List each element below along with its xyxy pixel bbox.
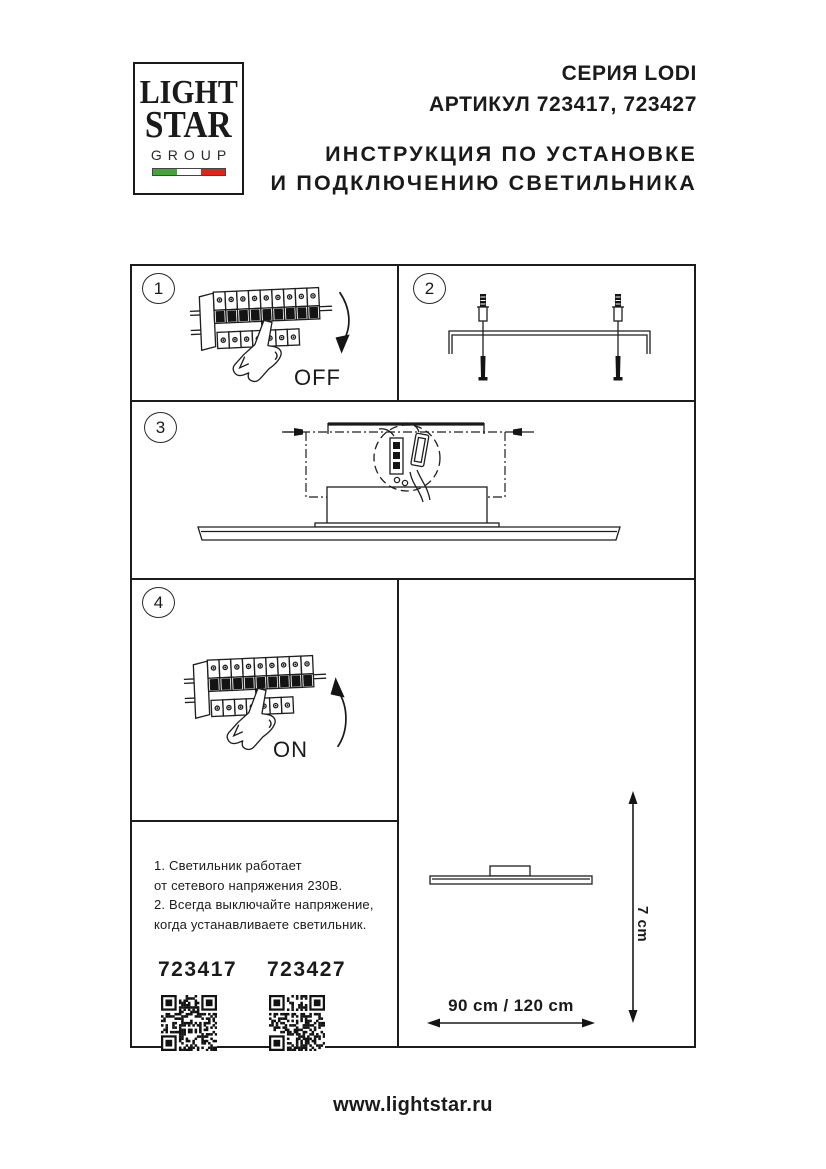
flag-white-segment — [177, 169, 201, 175]
step-number-badge: 1 — [142, 273, 175, 304]
mounting-bracket-diagram — [399, 266, 694, 400]
logo-word-group: GROUP — [151, 147, 232, 163]
flag-red-segment — [201, 169, 225, 175]
qr-code-723417 — [161, 995, 217, 1051]
article-numbers: АРТИКУЛ 723417, 723427 — [271, 93, 697, 117]
article-code-723427: 723427 — [267, 958, 329, 982]
note-line: когда устанавливаете светильник. — [154, 915, 387, 935]
dimensions-panel: 90 cm / 120 cm 7 cm — [399, 580, 694, 1046]
header: СЕРИЯ LODI АРТИКУЛ 723417, 723427 ИНСТРУ… — [271, 62, 697, 198]
logo-word-star: STAR — [145, 108, 232, 143]
step-panel-1: 1 OFF — [132, 266, 397, 400]
instruction-title-line2: И ПОДКЛЮЧЕНИЮ СВЕТИЛЬНИКА — [271, 169, 697, 198]
step-panel-2: 2 — [399, 266, 694, 400]
article-code-723417: 723417 — [158, 958, 220, 982]
notes-panel: 1. Светильник работает от сетевого напря… — [132, 822, 397, 1046]
qr-code-723427 — [269, 995, 325, 1051]
on-label: ON — [273, 737, 308, 763]
step-panel-4: 4 ON — [132, 580, 397, 820]
off-label: OFF — [294, 365, 341, 391]
website-url: www.lightstar.ru — [0, 1094, 826, 1117]
step-panel-3: 3 — [132, 402, 694, 578]
note-line: 1. Светильник работает — [154, 856, 387, 876]
lightstar-logo: LIGHT STAR GROUP — [133, 62, 244, 195]
installation-diagram — [132, 402, 694, 578]
height-dimension-label: 7 cm — [634, 906, 651, 942]
fixture-side-view — [399, 580, 694, 1046]
instruction-grid: 1 OFF 2 3 — [130, 264, 696, 1048]
flag-green-segment — [153, 169, 177, 175]
italian-flag-stripe — [152, 168, 226, 176]
note-line: 2. Всегда выключайте напряжение, — [154, 895, 387, 915]
width-dimension-arrow — [427, 1019, 595, 1028]
instruction-title-line1: ИНСТРУКЦИЯ ПО УСТАНОВКЕ — [271, 140, 697, 169]
step-number-badge: 4 — [142, 587, 175, 618]
width-dimension-label: 90 cm / 120 cm — [428, 996, 594, 1016]
circuit-breaker-on-diagram — [184, 646, 354, 759]
note-line: от сетевого напряжения 230В. — [154, 876, 387, 896]
series-title: СЕРИЯ LODI — [271, 62, 697, 86]
instruction-sheet: LIGHT STAR GROUP СЕРИЯ LODI АРТИКУЛ 7234… — [0, 0, 826, 1169]
